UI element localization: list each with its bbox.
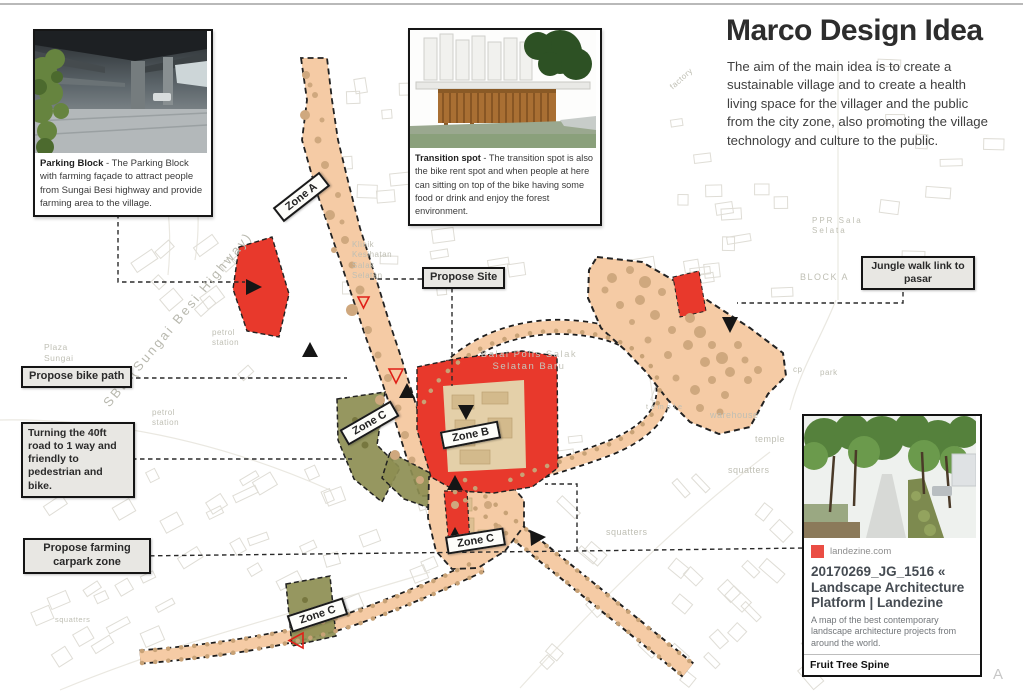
transition-spot-render [410, 30, 596, 148]
card-source: landezine.com [830, 546, 891, 557]
map-label-warehouse: warehouse [710, 410, 759, 422]
map-label-petrol-station-2: petrol station [152, 408, 179, 429]
card-source-row: landezine.com [811, 545, 973, 558]
map-label-ppr: PPR Sala Selata [812, 216, 863, 237]
fruit-tree-spine-label: Fruit Tree Spine [804, 654, 980, 675]
parking-block-photo [35, 31, 207, 153]
map-label-block-a: BLOCK A [800, 272, 849, 284]
transition-callout-caption: Transition spot - The transition spot is… [410, 148, 600, 224]
map-label-squatters-1: squatters [728, 465, 770, 477]
parking-block-callout: Parking Block - The Parking Block with f… [33, 29, 213, 217]
note-farming-carpark: Propose farming carpark zone [23, 538, 151, 574]
parking-callout-title: Parking Block [40, 158, 103, 169]
parking-callout-caption: Parking Block - The Parking Block with f… [35, 153, 211, 215]
map-label-park: park [820, 368, 838, 378]
map-label-temple: temple [755, 434, 785, 446]
map-label-squatters-3: squatters [55, 615, 90, 625]
corner-mark: A [993, 666, 1003, 683]
landezine-favicon [811, 545, 824, 558]
map-label-cp: cp [793, 365, 802, 375]
card-title: 20170269_JG_1516 « Landscape Architectur… [811, 564, 973, 611]
page-title: Marco Design Idea [726, 14, 983, 48]
design-board: Plaza Sungai Besi SBE (Sungai Besi Highw… [0, 0, 1023, 691]
map-label-balai-polis: Balai Polis Salak Selatan Baru [470, 349, 588, 374]
page-intro-paragraph: The aim of the main idea is to create a … [727, 58, 993, 150]
card-description: A map of the best contemporary landscape… [811, 615, 973, 650]
map-label-squatters-2: squatters [606, 527, 648, 539]
note-propose-site: Propose Site [422, 267, 505, 289]
card-body: landezine.com 20170269_JG_1516 « Landsca… [804, 538, 980, 654]
note-propose-bike-path: Propose bike path [21, 366, 132, 388]
landezine-reference-card: landezine.com 20170269_JG_1516 « Landsca… [802, 414, 982, 677]
map-label-temple-2: temple [646, 403, 685, 412]
transition-spot-callout: Transition spot - The transition spot is… [408, 28, 602, 226]
map-label-petrol-station-1: petrol station [212, 328, 239, 349]
note-jungle-walk: Jungle walk link to pasar [861, 256, 975, 290]
note-turning-40ft: Turning the 40ft road to 1 way and frien… [21, 422, 135, 498]
map-label-klinik: Klinik Kesihatan Salak Selatan [352, 240, 392, 282]
transition-callout-title: Transition spot [415, 153, 481, 163]
fruit-tree-spine-photo [804, 416, 976, 538]
